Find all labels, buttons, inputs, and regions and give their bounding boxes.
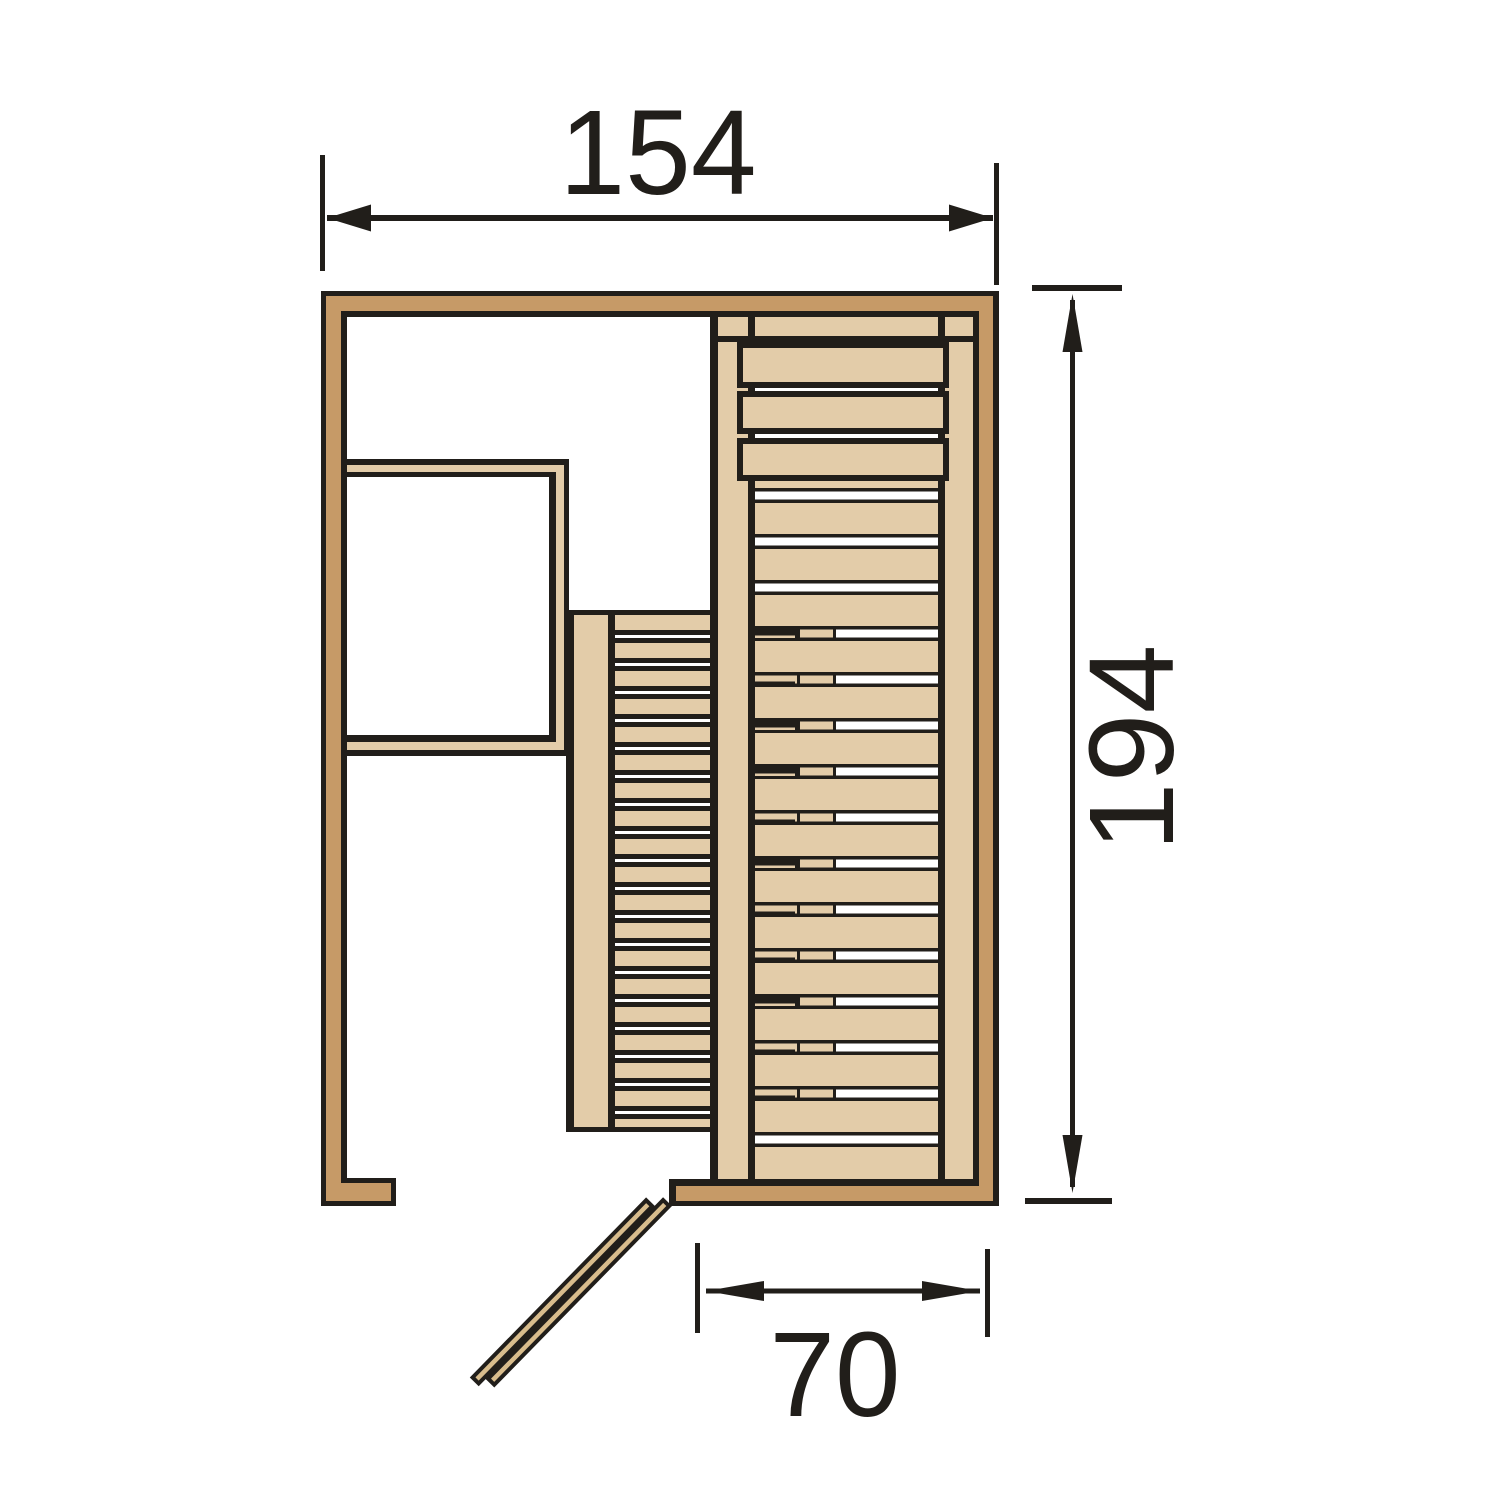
svg-text:154: 154 (560, 84, 757, 220)
svg-text:70: 70 (770, 1306, 901, 1442)
svg-text:194: 194 (1063, 645, 1199, 852)
